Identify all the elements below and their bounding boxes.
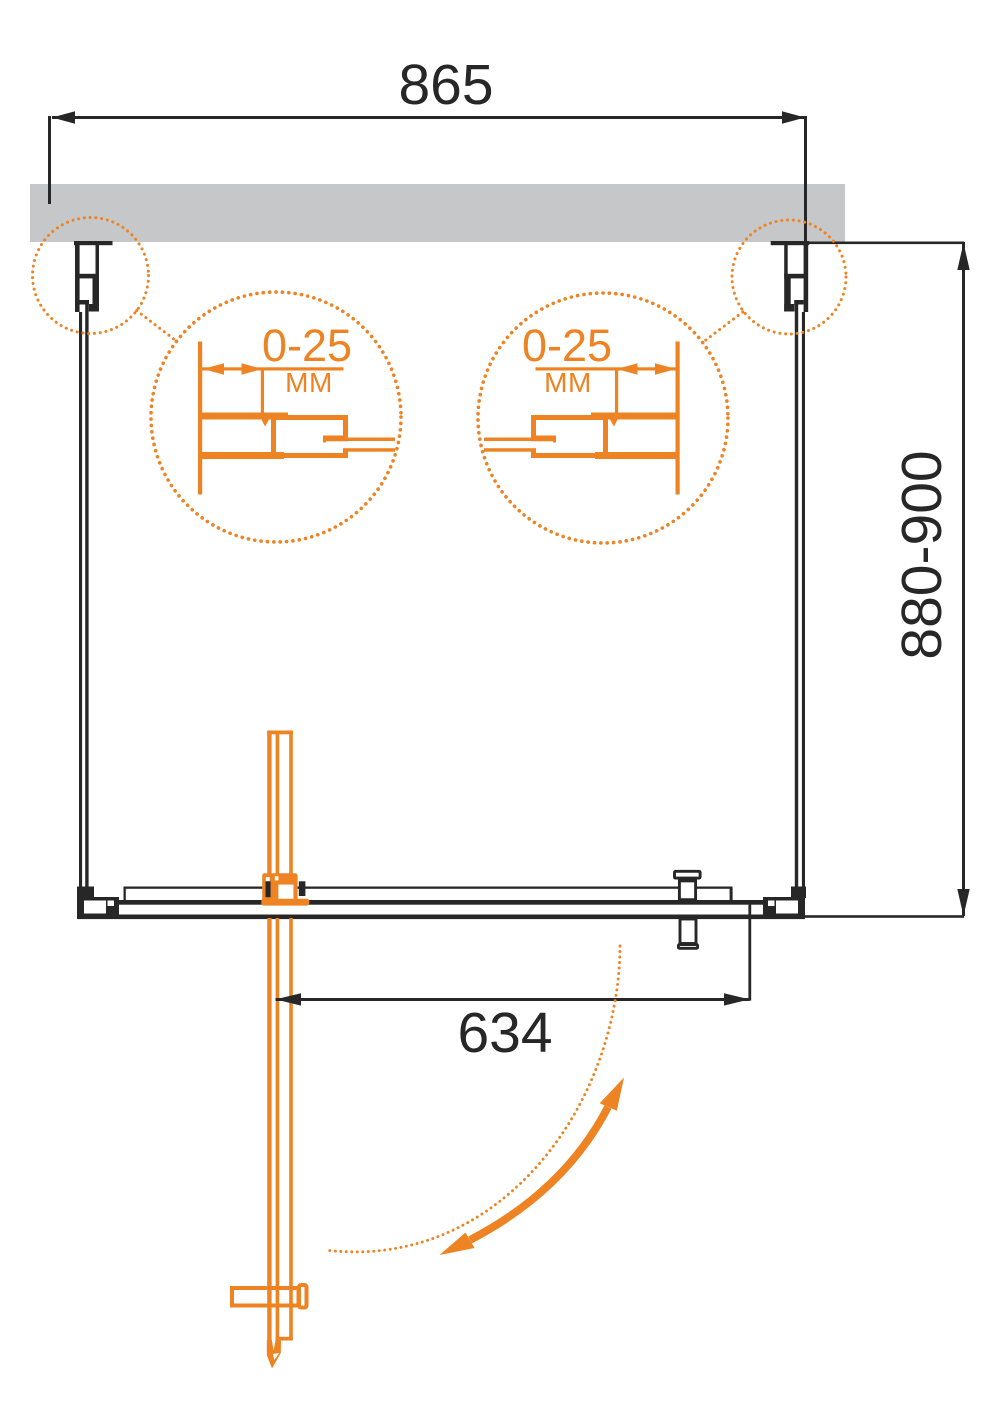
svg-text:0-25: 0-25 [262, 320, 352, 371]
svg-text:0-25: 0-25 [522, 320, 612, 371]
svg-text:865: 865 [398, 53, 493, 117]
svg-text:MM: MM [285, 367, 333, 398]
svg-text:880-900: 880-900 [890, 450, 954, 659]
svg-text:MM: MM [544, 367, 592, 398]
svg-text:634: 634 [457, 1001, 552, 1065]
